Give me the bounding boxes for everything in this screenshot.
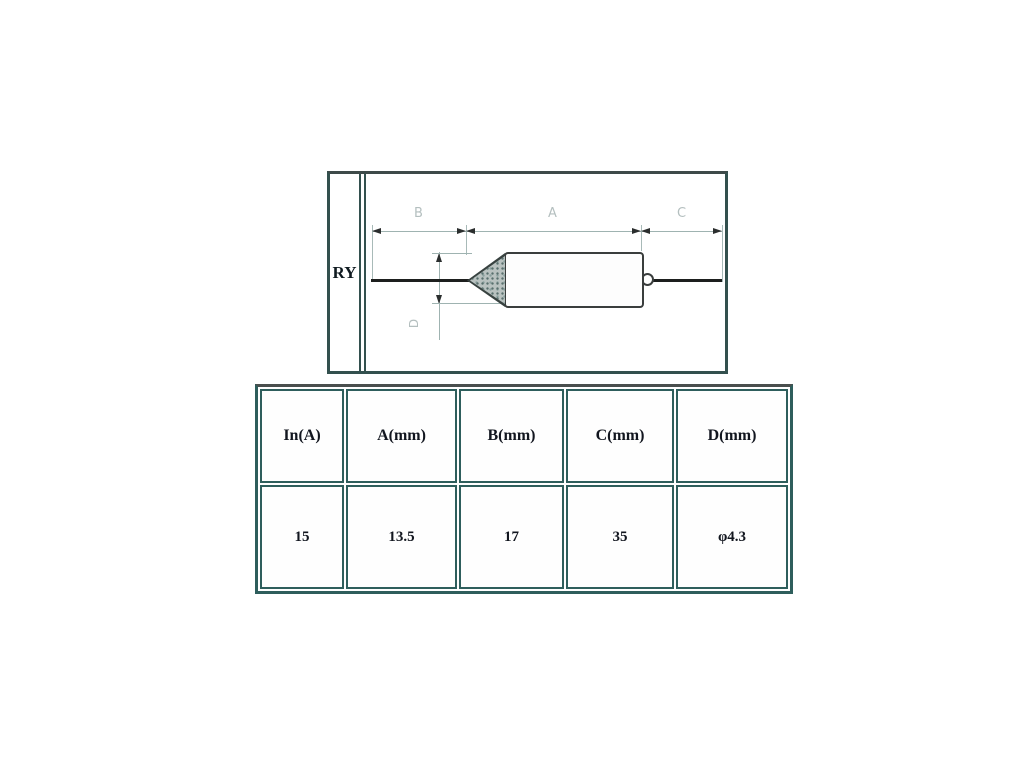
arrow-c-right-icon	[713, 228, 722, 234]
spec-table: In(A) A(mm) B(mm) C(mm) D(mm) 15 13.5 17…	[255, 384, 793, 594]
spec-value-b: 17	[459, 485, 564, 589]
arrow-a-right-icon	[632, 228, 641, 234]
page: { "diagram": { "series_label": "RY", "di…	[0, 0, 1024, 768]
fuse-lead-left	[371, 279, 470, 282]
col-header-a: A(mm)	[346, 389, 457, 483]
fuse-lead-right	[652, 279, 722, 282]
spec-value-a: 13.5	[346, 485, 457, 589]
col-header-b: B(mm)	[459, 389, 564, 483]
spec-value-c: 35	[566, 485, 674, 589]
dimension-line-horizontal	[372, 231, 722, 232]
dim-label-d: D	[408, 319, 421, 328]
column-divider-line	[364, 174, 366, 371]
arrow-d-up-icon	[436, 253, 442, 262]
arrow-a-left-icon	[466, 228, 475, 234]
col-header-c: C(mm)	[566, 389, 674, 483]
fuse-cone	[470, 256, 505, 304]
extension-line-right	[722, 225, 723, 282]
drawing-panel: RY B A C D	[327, 171, 728, 374]
dim-label-b: B	[414, 207, 423, 220]
spec-value-in: 15	[260, 485, 344, 589]
spec-table-header-row: In(A) A(mm) B(mm) C(mm) D(mm)	[260, 389, 788, 483]
arrow-b-right-icon	[457, 228, 466, 234]
series-label-cell: RY	[330, 174, 361, 371]
col-header-d: D(mm)	[676, 389, 788, 483]
arrow-c-left-icon	[641, 228, 650, 234]
extension-line-d-top	[432, 253, 472, 254]
fuse-body	[504, 252, 644, 308]
extension-line-d-bottom	[432, 303, 506, 304]
spec-value-d: φ4.3	[676, 485, 788, 589]
series-label: RY	[333, 263, 357, 283]
col-header-in: In(A)	[260, 389, 344, 483]
dim-label-c: C	[677, 207, 686, 220]
dim-label-a: A	[548, 207, 557, 220]
arrow-b-left-icon	[372, 228, 381, 234]
spec-table-value-row: 15 13.5 17 35 φ4.3	[260, 485, 788, 589]
